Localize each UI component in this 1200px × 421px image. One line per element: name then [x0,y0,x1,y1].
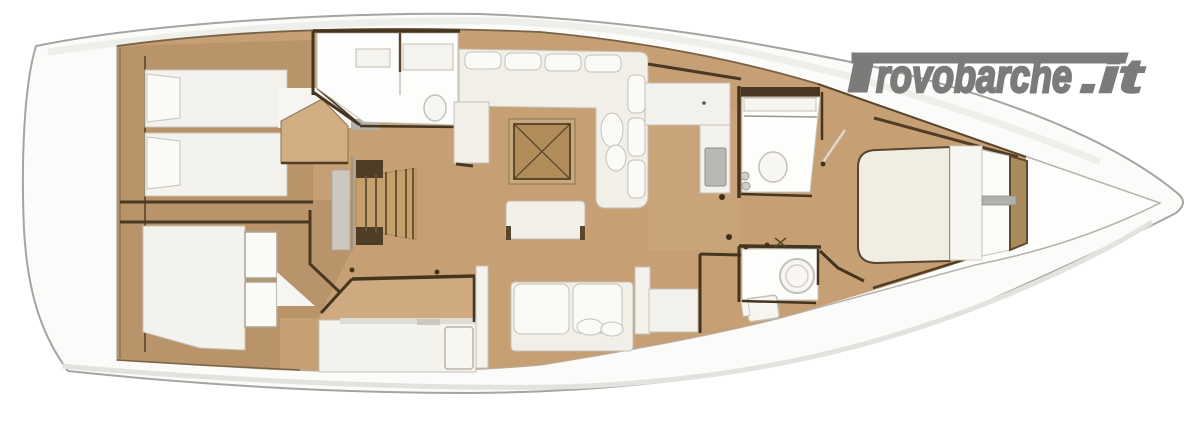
svg-text:.it: .it [1080,50,1145,102]
svg-text:rovobarche: rovobarche [876,50,1072,102]
